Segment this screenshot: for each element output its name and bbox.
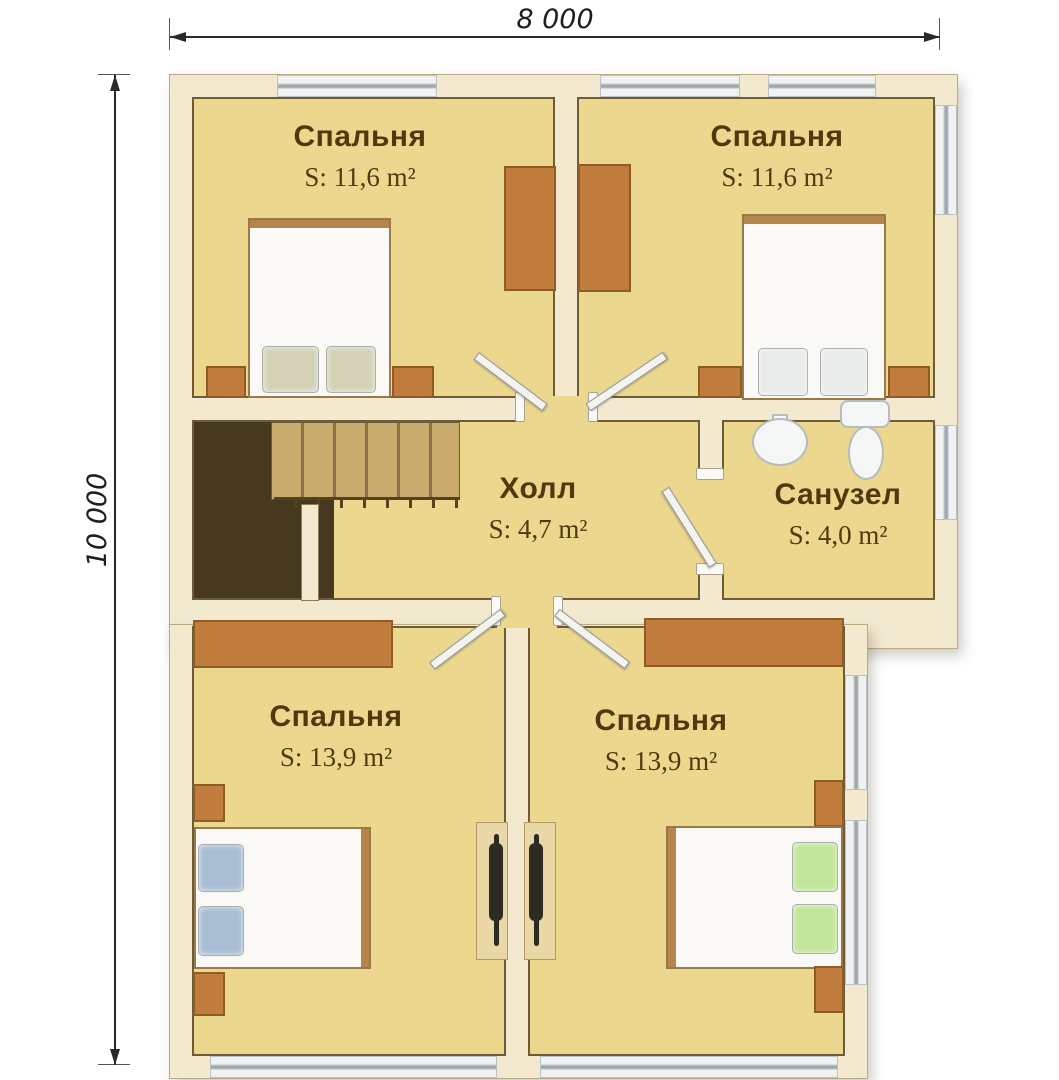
room-name: Спальня <box>240 120 480 154</box>
window <box>540 1056 838 1078</box>
floor-plan: Спальня S: 11,6 m² Спальня S: 11,6 m² Хо… <box>0 0 1059 1080</box>
nightstand <box>814 780 844 827</box>
room-label-bathroom: Санузел S: 4,0 m² <box>718 478 958 551</box>
bed-footboard <box>250 220 389 228</box>
wardrobe <box>504 166 556 291</box>
room-area: S: 4,0 m² <box>718 520 958 551</box>
nightstand <box>392 366 434 398</box>
room-name: Спальня <box>657 120 897 154</box>
nightstand <box>193 972 225 1016</box>
dimension-line-height <box>114 75 116 1065</box>
bed-footboard <box>668 828 676 967</box>
pillow <box>758 348 808 396</box>
toilet-bowl <box>848 426 884 480</box>
window <box>935 105 957 215</box>
dimension-line-width <box>170 36 940 38</box>
stair-wall-stub <box>302 505 318 600</box>
sink <box>752 418 808 466</box>
room-area: S: 4,7 m² <box>418 514 658 545</box>
pillow <box>326 346 376 393</box>
dimension-width-label: 8 000 <box>455 4 655 35</box>
room-area: S: 11,6 m² <box>657 162 897 193</box>
pillow <box>820 348 868 396</box>
bed-footboard <box>361 829 369 967</box>
nightstand <box>206 366 246 398</box>
room-label-bedroom-top-left: Спальня S: 11,6 m² <box>240 120 480 193</box>
dimension-height-label: 10 000 <box>83 440 113 600</box>
room-name: Санузел <box>718 478 958 512</box>
room-label-bedroom-bottom-left: Спальня S: 13,9 m² <box>216 700 456 773</box>
room-name: Спальня <box>216 700 456 734</box>
room-area: S: 13,9 m² <box>216 742 456 773</box>
chair <box>529 843 543 921</box>
nightstand <box>698 366 742 398</box>
window <box>768 75 876 97</box>
room-area: S: 11,6 m² <box>240 162 480 193</box>
room-label-bedroom-top-right: Спальня S: 11,6 m² <box>657 120 897 193</box>
nightstand <box>814 966 844 1013</box>
chair <box>489 843 503 921</box>
window <box>600 75 740 97</box>
bed-footboard <box>744 216 884 224</box>
arrow-up-icon <box>110 75 120 91</box>
arrow-right-icon <box>924 32 940 42</box>
nightstand <box>888 366 930 398</box>
wardrobe <box>644 618 844 667</box>
arrow-left-icon <box>170 32 186 42</box>
arrow-down-icon <box>110 1049 120 1065</box>
nightstand <box>193 784 225 822</box>
room-name: Холл <box>418 472 658 506</box>
window <box>845 675 867 790</box>
window <box>277 75 437 97</box>
pillow <box>198 906 244 956</box>
pillow <box>792 904 838 954</box>
window <box>210 1056 497 1078</box>
pillow <box>792 842 838 892</box>
pillow <box>198 844 244 892</box>
door-opening-bottom-bedrooms <box>497 598 557 628</box>
toilet-tank <box>840 400 890 428</box>
pillow <box>262 346 319 393</box>
room-label-hall: Холл S: 4,7 m² <box>418 472 658 545</box>
wardrobe <box>578 164 631 292</box>
window <box>845 820 867 985</box>
room-area: S: 13,9 m² <box>541 746 781 777</box>
room-label-bedroom-bottom-right: Спальня S: 13,9 m² <box>541 704 781 777</box>
wardrobe <box>193 620 393 668</box>
room-name: Спальня <box>541 704 781 738</box>
